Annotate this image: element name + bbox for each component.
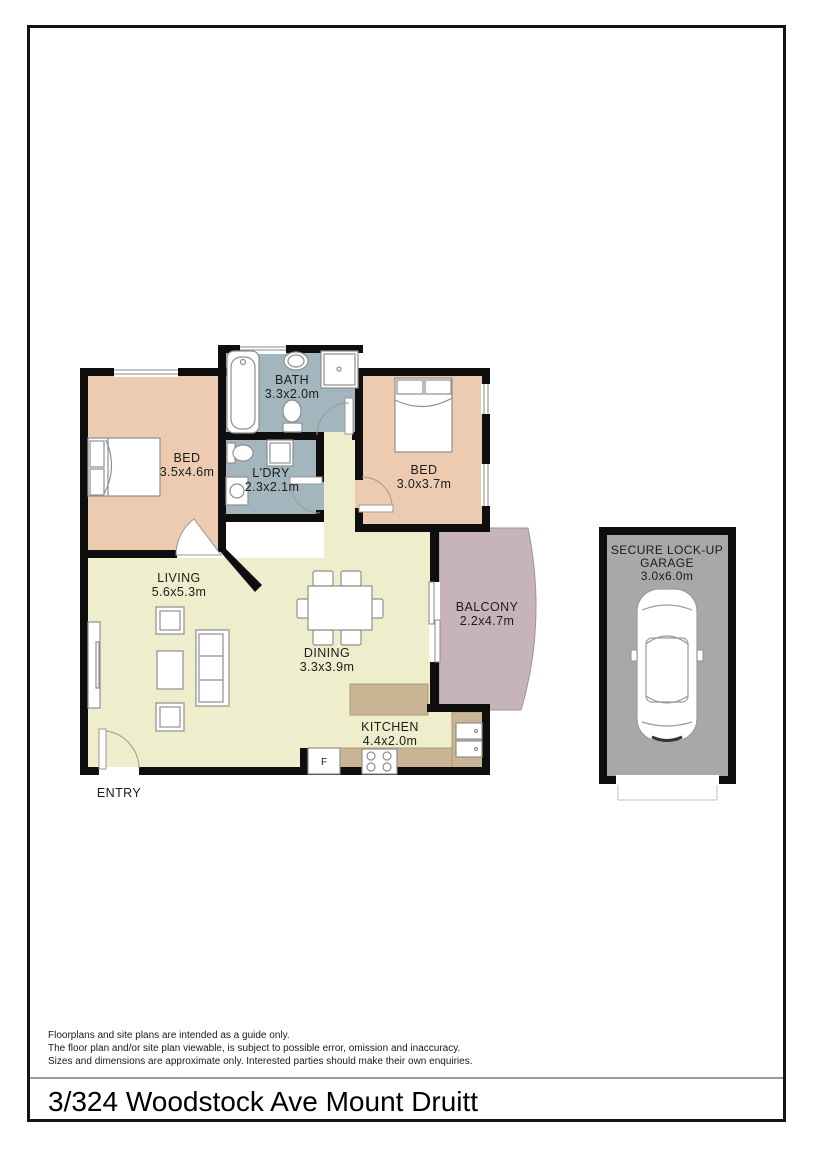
room-label-entry: ENTRY	[97, 786, 141, 800]
garage-dims: 3.0x6.0m	[641, 569, 694, 583]
wall-left	[80, 368, 88, 775]
room-label-bath: BATH	[275, 373, 309, 387]
room-dims-balcony: 2.2x4.7m	[460, 614, 515, 628]
wall-bottom	[80, 767, 490, 775]
wall-bed1-bottom	[80, 550, 177, 558]
armchair-bottom	[156, 703, 184, 731]
room-label-bed1: BED	[174, 451, 201, 465]
balcony-slider-panel2	[435, 620, 440, 662]
room-dims-bed1: 3.5x4.6m	[160, 465, 215, 479]
room-label-balcony: BALCONY	[456, 600, 519, 614]
room-dims-dining: 3.3x3.9m	[300, 660, 355, 674]
balcony-slider-panel1	[429, 582, 434, 624]
entry-door-leaf	[99, 729, 106, 769]
coffee-table	[157, 651, 183, 689]
wall-bed2-bottom	[355, 524, 490, 532]
footer-divider-line	[30, 1077, 783, 1079]
room-label-laundry: L'DRY	[252, 466, 290, 480]
garage-door-opening	[616, 775, 719, 784]
wall-balcony-bottom	[427, 704, 490, 712]
disclaimer-line-2: The floor plan and/or site plan viewable…	[48, 1042, 473, 1055]
wall-balcony-upper	[430, 528, 439, 582]
room-dims-laundry: 2.3x2.1m	[245, 480, 300, 494]
sofa	[196, 630, 229, 706]
room-dims-bed2: 3.0x3.7m	[397, 477, 452, 491]
furniture-bed1	[88, 438, 160, 496]
room-dims-living: 5.6x5.3m	[152, 585, 207, 599]
laundry-tub	[267, 440, 293, 466]
wall-fridge-stub	[300, 748, 308, 775]
room-label-bed2: BED	[411, 463, 438, 477]
kitchen-island	[350, 684, 428, 715]
wall-kitchen-right	[482, 704, 490, 775]
dining-table	[308, 586, 372, 630]
garage-label-line1: SECURE LOCK-UP	[611, 543, 723, 557]
garage-label-line2: GARAGE	[640, 556, 694, 570]
bed2-window-lower	[481, 464, 491, 506]
bed2-door-leaf	[359, 505, 393, 512]
wall-laundry-bottom	[218, 514, 324, 522]
room-label-dining: DINING	[304, 646, 350, 660]
room-label-living: LIVING	[157, 571, 200, 585]
wall-laundry-right-upper	[316, 440, 324, 482]
room-dims-bath: 3.3x2.0m	[265, 387, 320, 401]
bed2-window-upper	[481, 384, 491, 414]
disclaimer-line-3: Sizes and dimensions are approximate onl…	[48, 1055, 473, 1068]
garage-driveway-lines	[618, 785, 717, 800]
furniture-bed2	[395, 378, 452, 452]
floorplan-page: BATH 3.3x2.0m BED 3.5x4.6m L'DRY 2.3x2.1…	[0, 0, 813, 1150]
floorplan-drawing: BATH 3.3x2.0m BED 3.5x4.6m L'DRY 2.3x2.1…	[0, 0, 813, 1150]
bath-toilet	[283, 400, 302, 432]
bathtub	[227, 351, 259, 433]
laundry-door-gap-floor	[316, 480, 324, 512]
room-dims-kitchen: 4.4x2.0m	[363, 734, 418, 748]
bath-sink	[284, 352, 308, 370]
disclaimer-line-1: Floorplans and site plans are intended a…	[48, 1029, 473, 1042]
room-label-kitchen: KITCHEN	[361, 720, 419, 734]
armchair-top	[156, 607, 184, 634]
stove	[362, 749, 397, 774]
fridge-label: F	[321, 757, 327, 768]
disclaimer-text: Floorplans and site plans are intended a…	[48, 1029, 473, 1068]
bed1-window	[114, 366, 178, 377]
car-illustration	[631, 589, 703, 741]
shower	[321, 351, 358, 388]
wall-bed2-top	[355, 368, 490, 376]
tv-unit	[88, 622, 100, 708]
laundry-toilet	[227, 443, 253, 463]
property-address: 3/324 Woodstock Ave Mount Druitt	[48, 1086, 478, 1118]
